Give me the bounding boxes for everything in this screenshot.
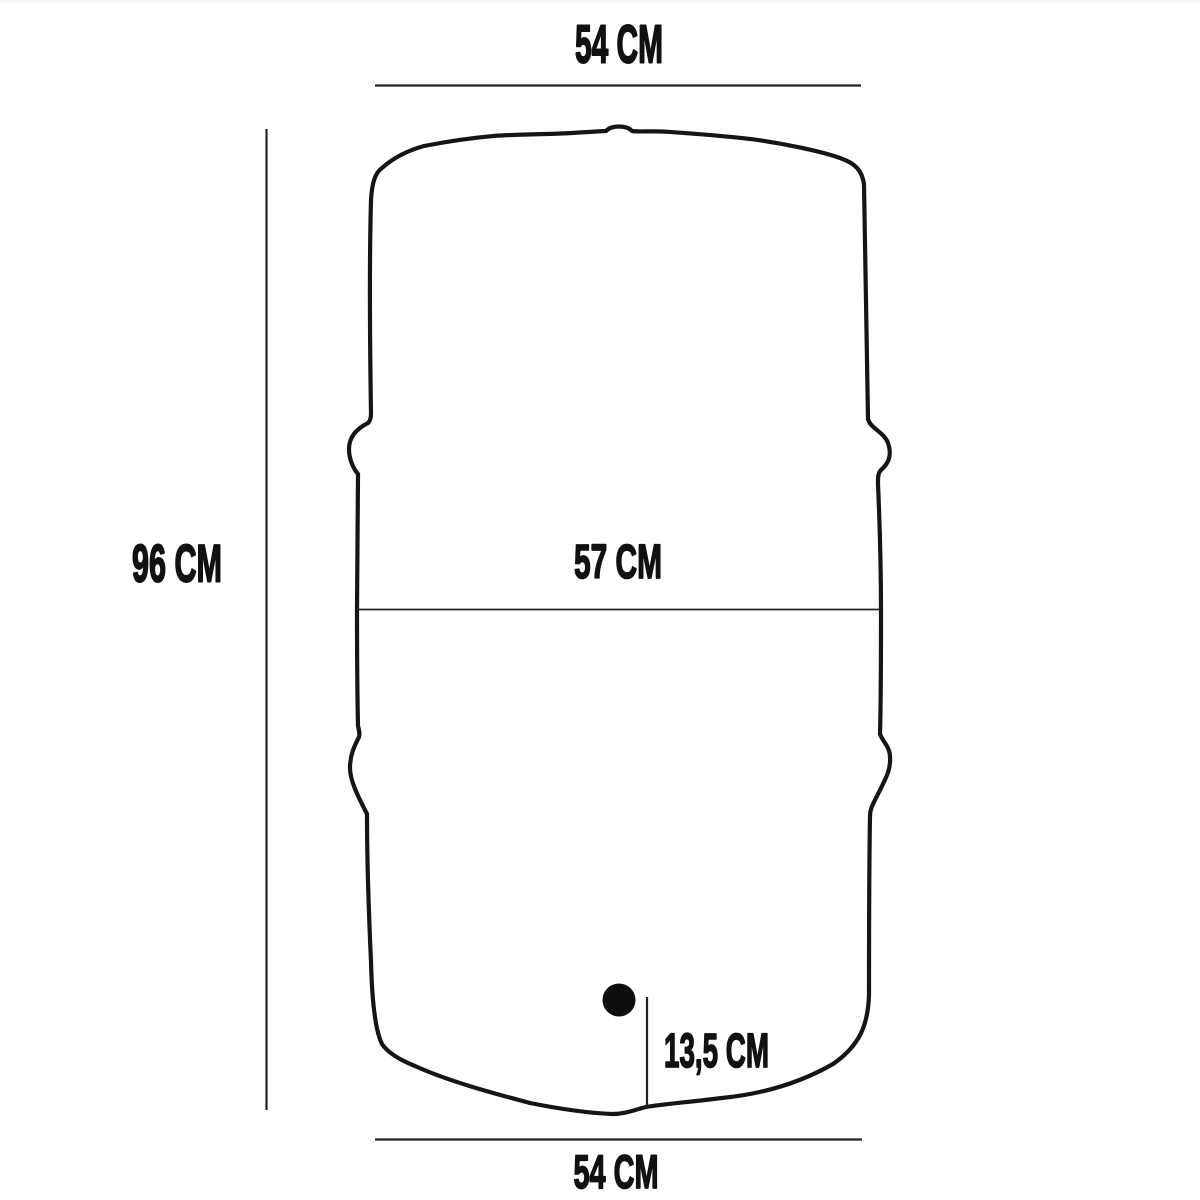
svg-text:54 CM: 54 CM (574, 1146, 659, 1199)
svg-text:96 CM: 96 CM (132, 535, 222, 594)
svg-text:57 CM: 57 CM (574, 535, 662, 589)
svg-text:13,5 CM: 13,5 CM (664, 1024, 769, 1078)
svg-text:54 CM: 54 CM (575, 15, 663, 75)
